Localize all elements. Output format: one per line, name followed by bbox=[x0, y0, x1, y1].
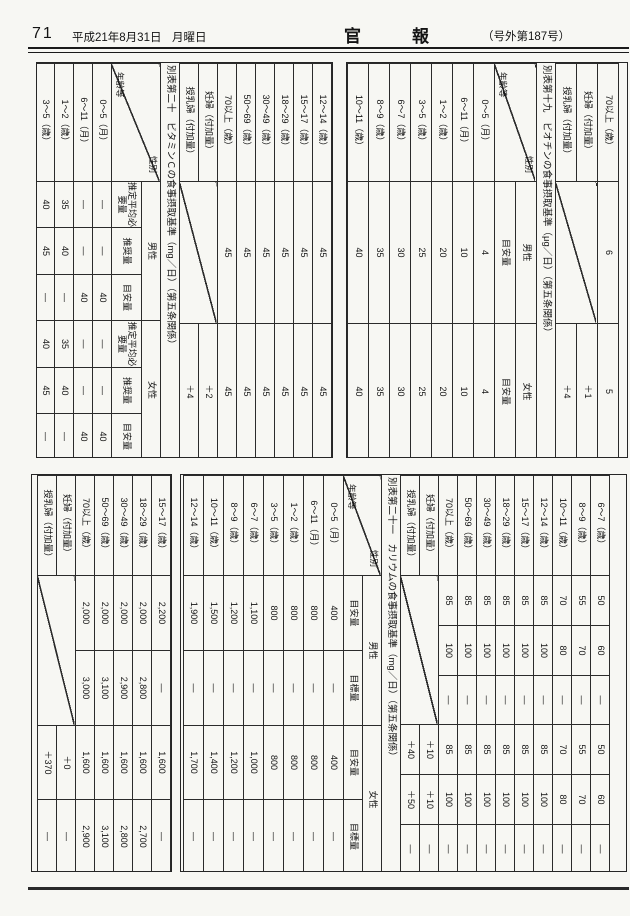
age-label-cell: 30～49（歳） bbox=[256, 64, 275, 182]
value-cell: 100 bbox=[458, 775, 477, 825]
issue-number: （号外第187号） bbox=[482, 28, 570, 44]
value-cell: ＋10 bbox=[420, 725, 439, 775]
header-cell: 男性 bbox=[363, 576, 382, 726]
value-cell: 1,600 bbox=[152, 726, 171, 800]
table-row: 0～5（月）——40——40 bbox=[93, 64, 112, 459]
header-cell: 女性 bbox=[363, 726, 382, 872]
value-cell: — bbox=[74, 368, 93, 414]
header-cell: 目安量 bbox=[495, 324, 516, 459]
age-label-cell: 12～14（歳） bbox=[184, 476, 204, 576]
publication-date: 平成21年8月31日 bbox=[72, 29, 161, 45]
table-row: 妊婦（付加量）＋2 bbox=[199, 64, 218, 459]
value-cell: 1,600 bbox=[114, 726, 133, 800]
gazette-title: 官 報 bbox=[344, 22, 429, 47]
header-cell: 男性 bbox=[142, 182, 161, 321]
value-cell: 85 bbox=[534, 725, 553, 775]
table-block-top-right: 70以上（歳）65妊婦（付加量）＋1授乳婦（付加量）＋4 別表第十九 ビオチンの… bbox=[346, 62, 628, 458]
potassium-table-part1-mount: 性別年齢等男性女性目安量目標量目安量目標量0～5（月）400—400—6～11（… bbox=[183, 475, 382, 872]
age-label-cell: 70以上（歳） bbox=[439, 476, 458, 576]
age-label-cell: 6～11（月） bbox=[453, 64, 474, 182]
value-cell: 40 bbox=[36, 182, 55, 228]
table-row: 6～7（歳）3030 bbox=[390, 64, 411, 459]
age-label-cell: 6～11（月） bbox=[74, 64, 93, 182]
value-cell: — bbox=[553, 676, 572, 725]
age-label-cell: 8～9（歳） bbox=[224, 476, 244, 576]
value-cell: ＋370 bbox=[38, 726, 57, 800]
table-row: 1～2（歳）2020 bbox=[432, 64, 453, 459]
table-row: 12～14（歳）4545 bbox=[313, 64, 332, 459]
table-row: 10～11（歳）4040 bbox=[348, 64, 369, 459]
pantothenic-tail-table: 70以上（歳）65妊婦（付加量）＋1授乳婦（付加量）＋4 bbox=[555, 63, 619, 458]
value-cell: — bbox=[591, 676, 610, 725]
age-label-cell: 10～11（歳） bbox=[204, 476, 224, 576]
value-cell: — bbox=[284, 651, 304, 726]
value-cell: 85 bbox=[439, 576, 458, 626]
value-cell: 800 bbox=[284, 576, 304, 651]
table-row: 30～49（歳）2,0002,9001,6002,800 bbox=[114, 476, 133, 873]
vitamin-c-table-part1-mount: 性別年齢等男性女性推定平均必要量推奨量目安量推定平均必要量推奨量目安量0～5（月… bbox=[36, 63, 161, 458]
value-cell: 100 bbox=[458, 626, 477, 676]
header-cell: 推定平均必要量 bbox=[112, 182, 142, 228]
value-cell: — bbox=[458, 676, 477, 725]
table-block-bottom-left: 15～17（歳）2,200—1,600—18～29（歳）2,0002,8001,… bbox=[31, 474, 172, 872]
value-cell: — bbox=[38, 800, 57, 873]
page-number: 71 bbox=[32, 25, 54, 43]
value-cell: 60 bbox=[591, 626, 610, 676]
value-cell: 800 bbox=[264, 726, 284, 800]
value-cell: — bbox=[74, 182, 93, 228]
header-cell: 推定平均必要量 bbox=[112, 321, 142, 368]
table-row: 1～2（歳）3540—3540— bbox=[55, 64, 74, 459]
value-cell: 85 bbox=[477, 725, 496, 775]
value-cell: — bbox=[74, 228, 93, 275]
value-cell: 35 bbox=[369, 324, 390, 459]
rotated-content-a: 70以上（歳）65妊婦（付加量）＋1授乳婦（付加量）＋4 別表第十九 ビオチンの… bbox=[347, 63, 627, 458]
potassium-table-part1: 性別年齢等男性女性目安量目標量目安量目標量0～5（月）400—400—6～11（… bbox=[183, 475, 382, 872]
value-cell: 3,100 bbox=[95, 651, 114, 726]
table-row: 70以上（歳）85100—85100— bbox=[439, 476, 458, 873]
header-cell: 推奨量 bbox=[112, 228, 142, 275]
vitamin-c-table-part2: 6～7（歳）5060—5060—8～9（歳）5570—5570—10～11（歳）… bbox=[400, 475, 610, 872]
table-row: 6～7（歳）5060—5060— bbox=[591, 476, 610, 873]
table-row: 6～7（歳）1,100—1,000— bbox=[244, 476, 264, 873]
value-cell: — bbox=[324, 651, 344, 726]
value-cell: 2,200 bbox=[152, 576, 171, 651]
value-cell: 1,600 bbox=[95, 726, 114, 800]
table-row: 性別年齢等男性女性 bbox=[142, 64, 161, 459]
age-label-cell: 妊婦（付加量） bbox=[199, 64, 218, 182]
header-cell: 目安量 bbox=[344, 726, 363, 800]
value-cell: — bbox=[553, 825, 572, 873]
value-cell: — bbox=[515, 825, 534, 873]
table-row: 10～11（歳）1,500—1,400— bbox=[204, 476, 224, 873]
value-cell: 40 bbox=[93, 275, 112, 321]
value-cell: 100 bbox=[515, 775, 534, 825]
header-double-rule bbox=[28, 47, 629, 53]
age-label-cell: 6～11（月） bbox=[304, 476, 324, 576]
value-cell: — bbox=[496, 825, 515, 873]
value-cell: ＋40 bbox=[401, 725, 420, 775]
value-cell: 100 bbox=[477, 626, 496, 676]
value-cell: 55 bbox=[572, 576, 591, 626]
age-label-cell: 70以上（歳） bbox=[76, 476, 95, 576]
header-cell: 目安量 bbox=[344, 576, 363, 651]
value-cell: 5 bbox=[598, 324, 619, 459]
corner-sex-label: 性別 bbox=[524, 156, 533, 173]
weekday-label: 月曜日 bbox=[172, 29, 207, 45]
corner-age-label: 年齢等 bbox=[115, 72, 124, 98]
value-cell: 40 bbox=[74, 414, 93, 458]
table-row: 30～49（歳）85100—85100— bbox=[477, 476, 496, 873]
table-row: 性別年齢等男性女性 bbox=[363, 476, 382, 873]
age-label-cell: 70以上（歳） bbox=[598, 64, 619, 182]
value-cell: 85 bbox=[496, 725, 515, 775]
corner-diagonal-cell: 性別年齢等 bbox=[344, 476, 382, 576]
value-cell: 100 bbox=[439, 775, 458, 825]
value-cell: 35 bbox=[55, 182, 74, 228]
header-cell: 目安量 bbox=[112, 275, 142, 321]
gazette-page: 71 平成21年8月31日 月曜日 官 報 （号外第187号） 70以上（歳）6… bbox=[0, 0, 630, 916]
value-cell: — bbox=[244, 651, 264, 726]
value-cell: 45 bbox=[218, 182, 237, 324]
biotin-table-part2: 12～14（歳）454515～17（歳）454518～29（歳）454530～4… bbox=[179, 63, 332, 458]
value-cell: 2,000 bbox=[133, 576, 152, 651]
value-cell: 70 bbox=[572, 775, 591, 825]
value-cell: — bbox=[204, 651, 224, 726]
table-row: 12～14（歳）1,900—1,700— bbox=[184, 476, 204, 873]
header-cell: 目安量 bbox=[495, 182, 516, 324]
table-row: 10～11（歳）7080—7080— bbox=[553, 476, 572, 873]
corner-age-label: 年齢等 bbox=[498, 72, 507, 98]
age-label-cell: 1～2（歳） bbox=[432, 64, 453, 182]
potassium-table-part2-mount: 15～17（歳）2,200—1,600—18～29（歳）2,0002,8001,… bbox=[37, 475, 171, 872]
biotin-table-part1-mount: 性別年齢等男性女性目安量目安量0～5（月）446～11（月）10101～2（歳）… bbox=[347, 63, 537, 458]
value-cell: — bbox=[572, 676, 591, 725]
pantothenic-tail-table-mount: 70以上（歳）65妊婦（付加量）＋1授乳婦（付加量）＋4 bbox=[555, 63, 619, 458]
value-cell: 800 bbox=[264, 576, 284, 651]
table-row: 30～49（歳）4545 bbox=[256, 64, 275, 459]
table-row: 8～9（歳）3535 bbox=[369, 64, 390, 459]
biotin-table-title: 別表第十九 ビオチンの食事摂取基準（μg／日）（第五条関係） bbox=[537, 63, 555, 458]
value-cell: — bbox=[591, 825, 610, 873]
value-cell: 45 bbox=[36, 228, 55, 275]
value-cell: 100 bbox=[534, 626, 553, 676]
table-row: 12～14（歳）85100—85100— bbox=[534, 476, 553, 873]
value-cell: 4 bbox=[474, 324, 495, 459]
table-row: 3～5（歳）2525 bbox=[411, 64, 432, 459]
value-cell: 45 bbox=[256, 324, 275, 459]
value-cell: 60 bbox=[591, 775, 610, 825]
value-cell: — bbox=[36, 275, 55, 321]
value-cell: — bbox=[57, 800, 76, 873]
table-row: 70以上（歳）2,0003,0001,6002,900 bbox=[76, 476, 95, 873]
value-cell: 1,600 bbox=[133, 726, 152, 800]
table-row: 妊婦（付加量）＋0— bbox=[57, 476, 76, 873]
value-cell: — bbox=[284, 800, 304, 872]
value-cell: — bbox=[477, 825, 496, 873]
value-cell: — bbox=[55, 275, 74, 321]
age-label-cell: 授乳婦（付加量） bbox=[401, 476, 420, 576]
value-cell: 3,100 bbox=[95, 800, 114, 873]
strikeout-diagonal-cell bbox=[38, 576, 76, 726]
value-cell: 1,200 bbox=[224, 576, 244, 651]
value-cell: — bbox=[304, 651, 324, 726]
value-cell: 40 bbox=[55, 228, 74, 275]
value-cell: 70 bbox=[553, 576, 572, 626]
age-label-cell: 15～17（歳） bbox=[152, 476, 171, 576]
rotated-content-d: 15～17（歳）2,200—1,600—18～29（歳）2,0002,8001,… bbox=[32, 475, 171, 872]
value-cell: 400 bbox=[324, 726, 344, 800]
header-cell: 女性 bbox=[516, 324, 537, 459]
age-label-cell: 30～49（歳） bbox=[114, 476, 133, 576]
corner-sex-label: 性別 bbox=[148, 156, 157, 173]
value-cell: 70 bbox=[572, 626, 591, 676]
rotated-content-b: 12～14（歳）454515～17（歳）454518～29（歳）454530～4… bbox=[37, 63, 332, 458]
table-row: 性別年齢等男性女性 bbox=[516, 64, 537, 459]
age-label-cell: 70以上（歳） bbox=[218, 64, 237, 182]
value-cell: 85 bbox=[458, 576, 477, 626]
value-cell: — bbox=[496, 676, 515, 725]
header-cell: 推奨量 bbox=[112, 368, 142, 414]
age-label-cell: 6～7（歳） bbox=[244, 476, 264, 576]
age-label-cell: 3～5（歳） bbox=[36, 64, 55, 182]
potassium-table-title: 別表第二十一 カリウムの食事摂取基準（mg／日）（第五条関係） bbox=[382, 475, 400, 872]
value-cell: 800 bbox=[284, 726, 304, 800]
table-row: 18～29（歳）85100—85100— bbox=[496, 476, 515, 873]
value-cell: — bbox=[36, 414, 55, 458]
value-cell: 85 bbox=[458, 725, 477, 775]
age-label-cell: 18～29（歳） bbox=[275, 64, 294, 182]
value-cell: 50 bbox=[591, 576, 610, 626]
value-cell: 40 bbox=[74, 275, 93, 321]
vitamin-c-table-part2-mount: 6～7（歳）5060—5060—8～9（歳）5570—5570—10～11（歳）… bbox=[400, 475, 610, 872]
age-label-cell: 30～49（歳） bbox=[477, 476, 496, 576]
value-cell: 1,600 bbox=[76, 726, 95, 800]
table-row: 6～11（月）——40——40 bbox=[74, 64, 93, 459]
value-cell: 100 bbox=[534, 775, 553, 825]
age-label-cell: 1～2（歳） bbox=[284, 476, 304, 576]
value-cell: ＋2 bbox=[199, 324, 218, 459]
age-label-cell: 12～14（歳） bbox=[534, 476, 553, 576]
age-label-cell: 授乳婦（付加量） bbox=[38, 476, 57, 576]
value-cell: 1,900 bbox=[184, 576, 204, 651]
value-cell: — bbox=[224, 651, 244, 726]
value-cell: 45 bbox=[275, 182, 294, 324]
table-row: 50～69（歳）85100—85100— bbox=[458, 476, 477, 873]
vitamin-c-table-title: 別表第二十 ビタミンＣの食事摂取基準（mg／日）（第五条関係） bbox=[161, 63, 179, 458]
value-cell: 20 bbox=[432, 182, 453, 324]
value-cell: — bbox=[184, 651, 204, 726]
age-label-cell: 0～5（月） bbox=[93, 64, 112, 182]
value-cell: 6 bbox=[598, 182, 619, 324]
value-cell: 85 bbox=[534, 576, 553, 626]
value-cell: 45 bbox=[313, 182, 332, 324]
value-cell: 1,700 bbox=[184, 726, 204, 800]
value-cell: 40 bbox=[348, 324, 369, 459]
value-cell: 1,000 bbox=[244, 726, 264, 800]
table-row: 3～5（歳）4045—4045— bbox=[36, 64, 55, 459]
value-cell: 45 bbox=[36, 368, 55, 414]
value-cell: 2,900 bbox=[114, 651, 133, 726]
value-cell: 100 bbox=[515, 626, 534, 676]
table-row: 50～69（歳）4545 bbox=[237, 64, 256, 459]
value-cell: — bbox=[93, 321, 112, 368]
age-label-cell: 18～29（歳） bbox=[133, 476, 152, 576]
value-cell: — bbox=[184, 800, 204, 872]
value-cell: ＋4 bbox=[556, 324, 577, 459]
table-row: 70以上（歳）4545 bbox=[218, 64, 237, 459]
table-row: 70以上（歳）65 bbox=[598, 64, 619, 459]
value-cell: — bbox=[204, 800, 224, 872]
age-label-cell: 15～17（歳） bbox=[294, 64, 313, 182]
potassium-table-part2: 15～17（歳）2,200—1,600—18～29（歳）2,0002,8001,… bbox=[37, 475, 171, 872]
table-row: 妊婦（付加量）＋10＋10— bbox=[420, 476, 439, 873]
value-cell: 85 bbox=[515, 725, 534, 775]
value-cell: — bbox=[152, 800, 171, 873]
value-cell: 40 bbox=[36, 321, 55, 368]
table-row: 0～5（月）44 bbox=[474, 64, 495, 459]
age-label-cell: 50～69（歳） bbox=[458, 476, 477, 576]
value-cell: 85 bbox=[477, 576, 496, 626]
table-row: 8～9（歳）5570—5570— bbox=[572, 476, 591, 873]
header-cell: 目標量 bbox=[344, 651, 363, 726]
value-cell: 4 bbox=[474, 182, 495, 324]
value-cell: — bbox=[477, 676, 496, 725]
age-label-cell: 授乳婦（付加量） bbox=[180, 64, 199, 182]
value-cell: 3,000 bbox=[76, 651, 95, 726]
vitamin-c-table-part1: 性別年齢等男性女性推定平均必要量推奨量目安量推定平均必要量推奨量目安量0～5（月… bbox=[36, 63, 161, 458]
rotated-content-c: 6～7（歳）5060—5060—8～9（歳）5570—5570—10～11（歳）… bbox=[181, 475, 626, 872]
value-cell: — bbox=[74, 321, 93, 368]
value-cell: — bbox=[55, 414, 74, 458]
value-cell: — bbox=[93, 228, 112, 275]
age-label-cell: 0～5（月） bbox=[474, 64, 495, 182]
value-cell: 100 bbox=[496, 775, 515, 825]
value-cell: 10 bbox=[453, 324, 474, 459]
value-cell: 2,800 bbox=[114, 800, 133, 873]
value-cell: 85 bbox=[515, 576, 534, 626]
age-label-cell: 妊婦（付加量） bbox=[577, 64, 598, 182]
value-cell: ＋50 bbox=[401, 775, 420, 825]
value-cell: 100 bbox=[496, 626, 515, 676]
age-label-cell: 8～9（歳） bbox=[572, 476, 591, 576]
value-cell: — bbox=[572, 825, 591, 873]
table-row: 18～29（歳）4545 bbox=[275, 64, 294, 459]
value-cell: 45 bbox=[237, 324, 256, 459]
corner-age-label: 年齢等 bbox=[347, 484, 356, 510]
value-cell: 45 bbox=[294, 324, 313, 459]
value-cell: 2,700 bbox=[133, 800, 152, 873]
header-cell: 女性 bbox=[142, 321, 161, 458]
value-cell: 40 bbox=[348, 182, 369, 324]
table-row: 0～5（月）400—400— bbox=[324, 476, 344, 873]
age-label-cell: 妊婦（付加量） bbox=[420, 476, 439, 576]
age-label-cell: 12～14（歳） bbox=[313, 64, 332, 182]
table-row: 50～69（歳）2,0003,1001,6003,100 bbox=[95, 476, 114, 873]
age-label-cell: 10～11（歳） bbox=[553, 476, 572, 576]
age-label-cell: 妊婦（付加量） bbox=[57, 476, 76, 576]
value-cell: 1,500 bbox=[204, 576, 224, 651]
value-cell: 1,100 bbox=[244, 576, 264, 651]
table-row: 18～29（歳）2,0002,8001,6002,700 bbox=[133, 476, 152, 873]
header-cell: 目標量 bbox=[344, 800, 363, 872]
value-cell: ＋0 bbox=[57, 726, 76, 800]
header-cell: 目安量 bbox=[112, 414, 142, 458]
value-cell: 400 bbox=[324, 576, 344, 651]
value-cell: 45 bbox=[237, 182, 256, 324]
table-block-top-left: 12～14（歳）454515～17（歳）454518～29（歳）454530～4… bbox=[36, 62, 333, 458]
value-cell: 45 bbox=[275, 324, 294, 459]
value-cell: 50 bbox=[591, 725, 610, 775]
value-cell: — bbox=[458, 825, 477, 873]
age-label-cell: 8～9（歳） bbox=[369, 64, 390, 182]
value-cell: 1,400 bbox=[204, 726, 224, 800]
value-cell: — bbox=[93, 368, 112, 414]
value-cell: — bbox=[304, 800, 324, 872]
value-cell: 40 bbox=[55, 368, 74, 414]
age-label-cell: 50～69（歳） bbox=[237, 64, 256, 182]
table-row: 妊婦（付加量）＋1 bbox=[577, 64, 598, 459]
value-cell: 80 bbox=[553, 626, 572, 676]
table-row: 1～2（歳）800—800— bbox=[284, 476, 304, 873]
value-cell: — bbox=[439, 676, 458, 725]
age-label-cell: 18～29（歳） bbox=[496, 476, 515, 576]
corner-sex-label: 性別 bbox=[369, 550, 378, 567]
value-cell: 2,800 bbox=[133, 651, 152, 726]
value-cell: 800 bbox=[304, 576, 324, 651]
value-cell: 2,900 bbox=[76, 800, 95, 873]
value-cell: — bbox=[264, 651, 284, 726]
footer-rule bbox=[28, 887, 629, 890]
table-row: 15～17（歳）4545 bbox=[294, 64, 313, 459]
value-cell: 30 bbox=[390, 182, 411, 324]
value-cell: — bbox=[534, 676, 553, 725]
value-cell: 80 bbox=[553, 775, 572, 825]
value-cell: 85 bbox=[439, 725, 458, 775]
value-cell: 2,000 bbox=[114, 576, 133, 651]
biotin-table-part1: 性別年齢等男性女性目安量目安量0～5（月）446～11（月）10101～2（歳）… bbox=[347, 63, 537, 458]
value-cell: 45 bbox=[294, 182, 313, 324]
table-row: 8～9（歳）1,200—1,200— bbox=[224, 476, 244, 873]
table-block-bottom-right: 6～7（歳）5060—5060—8～9（歳）5570—5570—10～11（歳）… bbox=[180, 474, 627, 872]
table-row: 6～11（月）1010 bbox=[453, 64, 474, 459]
value-cell: 45 bbox=[256, 182, 275, 324]
value-cell: 100 bbox=[439, 626, 458, 676]
value-cell: — bbox=[439, 825, 458, 873]
table-row: 15～17（歳）2,200—1,600— bbox=[152, 476, 171, 873]
age-label-cell: 3～5（歳） bbox=[411, 64, 432, 182]
value-cell: — bbox=[401, 825, 420, 873]
age-label-cell: 6～7（歳） bbox=[390, 64, 411, 182]
value-cell: — bbox=[534, 825, 553, 873]
age-label-cell: 10～11（歳） bbox=[348, 64, 369, 182]
value-cell: 30 bbox=[390, 324, 411, 459]
corner-diagonal-cell: 性別年齢等 bbox=[112, 64, 161, 182]
value-cell: — bbox=[93, 182, 112, 228]
value-cell: 2,000 bbox=[76, 576, 95, 651]
value-cell: 20 bbox=[432, 324, 453, 459]
value-cell: 25 bbox=[411, 324, 432, 459]
value-cell: — bbox=[244, 800, 264, 872]
strikeout-diagonal-cell bbox=[180, 182, 218, 324]
header-cell: 男性 bbox=[516, 182, 537, 324]
value-cell: 35 bbox=[55, 321, 74, 368]
value-cell: 85 bbox=[496, 576, 515, 626]
value-cell: 55 bbox=[572, 725, 591, 775]
age-label-cell: 3～5（歳） bbox=[264, 476, 284, 576]
age-label-cell: 0～5（月） bbox=[324, 476, 344, 576]
age-label-cell: 50～69（歳） bbox=[95, 476, 114, 576]
